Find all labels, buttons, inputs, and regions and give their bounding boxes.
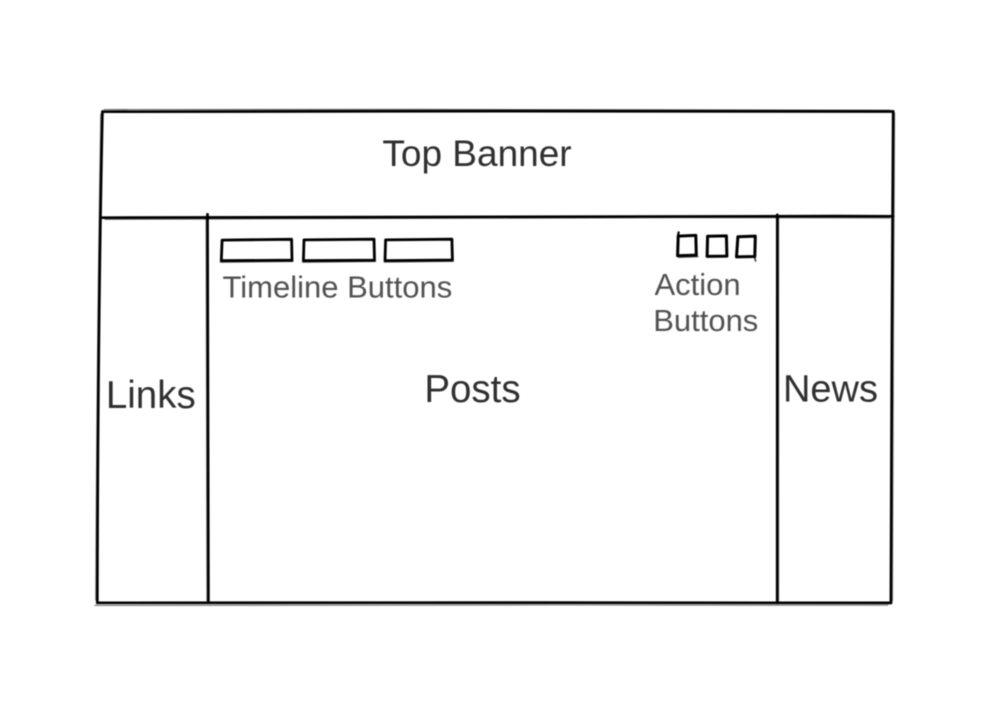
svg-text:News: News (783, 369, 878, 411)
svg-text:Buttons: Buttons (653, 303, 758, 338)
svg-text:Action: Action (655, 267, 741, 302)
svg-text:Links: Links (106, 374, 196, 417)
svg-text:Posts: Posts (424, 368, 520, 411)
svg-text:Top Banner: Top Banner (382, 133, 571, 174)
svg-text:Timeline Buttons: Timeline Buttons (223, 270, 453, 305)
